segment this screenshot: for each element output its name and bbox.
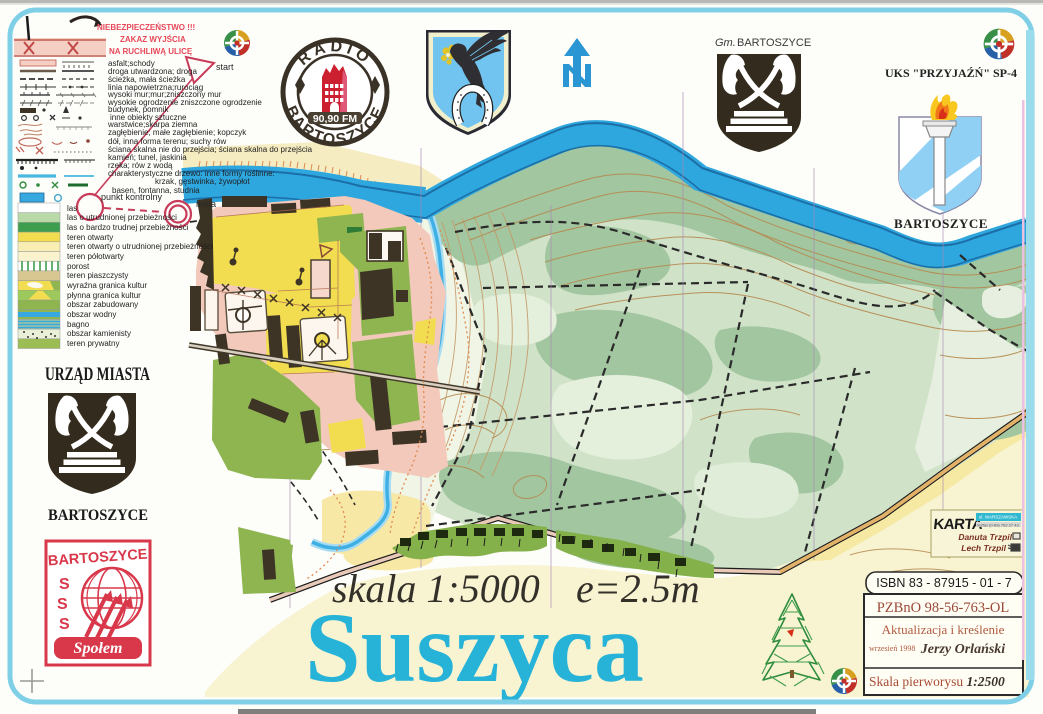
svg-text:teren półotwarty: teren półotwarty	[67, 252, 124, 261]
svg-text:basen, fontanna, studnia: basen, fontanna, studnia	[112, 186, 200, 195]
svg-text:90,90 FM: 90,90 FM	[313, 113, 358, 125]
svg-text:bagno: bagno	[67, 320, 90, 329]
svg-text:ISBN 83 - 87915 - 01 - 7: ISBN 83 - 87915 - 01 - 7	[876, 576, 1012, 590]
svg-text:las o utrudnionej przebieżnośc: las o utrudnionej przebieżności	[67, 213, 177, 222]
svg-text:Jerzy Orlański: Jerzy Orlański	[920, 642, 1006, 657]
svg-text:Danuta Trzpil: Danuta Trzpil	[958, 532, 1012, 542]
svg-text:BARTOSZYCE: BARTOSZYCE	[894, 216, 988, 231]
svg-text:Skala pierworysu 1:2500: Skala pierworysu 1:2500	[869, 674, 1005, 689]
svg-text:obszar kamienisty: obszar kamienisty	[67, 329, 131, 338]
svg-text:S: S	[57, 596, 68, 613]
svg-text:teren otwarty o utrudnionej pr: teren otwarty o utrudnionej przebieżnośc…	[67, 242, 213, 251]
svg-text:Aktualizacja i kreślenie: Aktualizacja i kreślenie	[882, 622, 1005, 637]
svg-text:zagłębienie; małe zagłębienie;: zagłębienie; małe zagłębienie; kopczyk	[108, 128, 247, 137]
svg-text:Suszyca: Suszyca	[305, 592, 644, 703]
svg-text:Lech Trzpil: Lech Trzpil	[961, 543, 1006, 553]
svg-text:PZBnO 98-56-763-OL: PZBnO 98-56-763-OL	[877, 600, 1010, 616]
svg-text:Gm.: Gm.	[715, 37, 736, 49]
svg-text:UKS "PRZYJAŹŃ" SP-4: UKS "PRZYJAŹŃ" SP-4	[885, 66, 1017, 80]
svg-text:ul. WARSZAWSKA: ul. WARSZAWSKA	[979, 515, 1017, 520]
svg-text:wyraźna granica kultur: wyraźna granica kultur	[66, 281, 147, 290]
svg-text:obszar wodny: obszar wodny	[67, 310, 116, 319]
svg-text:tel/fax (0-89) 762 27 43: tel/fax (0-89) 762 27 43	[977, 523, 1019, 528]
svg-text:teren piaszczysty: teren piaszczysty	[67, 271, 128, 280]
svg-text:BARTOSZYCE: BARTOSZYCE	[48, 507, 148, 524]
svg-text:las o bardzo trudnej przebieżn: las o bardzo trudnej przebieżności	[67, 223, 189, 232]
svg-text:start: start	[216, 62, 234, 72]
svg-text:ZAKAZ WYJŚCIA: ZAKAZ WYJŚCIA	[120, 35, 186, 44]
svg-text:Społem: Społem	[74, 640, 123, 657]
svg-text:obszar zabudowany: obszar zabudowany	[67, 300, 138, 309]
svg-text:płynna granica kultur: płynna granica kultur	[67, 291, 141, 300]
svg-text:BARTOSZYCE: BARTOSZYCE	[737, 37, 811, 49]
svg-text:meta: meta	[196, 199, 216, 209]
svg-text:teren otwarty: teren otwarty	[67, 233, 113, 242]
svg-text:S: S	[59, 616, 70, 633]
svg-text:teren prywatny: teren prywatny	[67, 339, 119, 348]
svg-text:krzak, gęstwinka, żywopłot: krzak, gęstwinka, żywopłot	[155, 177, 250, 186]
svg-text:URZĄD MIASTA: URZĄD MIASTA	[45, 364, 150, 385]
svg-text:wrzesień 1998: wrzesień 1998	[869, 644, 915, 653]
svg-text:porost: porost	[67, 262, 90, 271]
svg-text:NA RUCHLIWĄ ULICĘ: NA RUCHLIWĄ ULICĘ	[109, 47, 193, 56]
svg-text:S: S	[59, 576, 70, 593]
svg-text:las: las	[67, 204, 77, 213]
svg-text:NIEBEZPIECZEŃSTWO !!!: NIEBEZPIECZEŃSTWO !!!	[97, 23, 195, 32]
